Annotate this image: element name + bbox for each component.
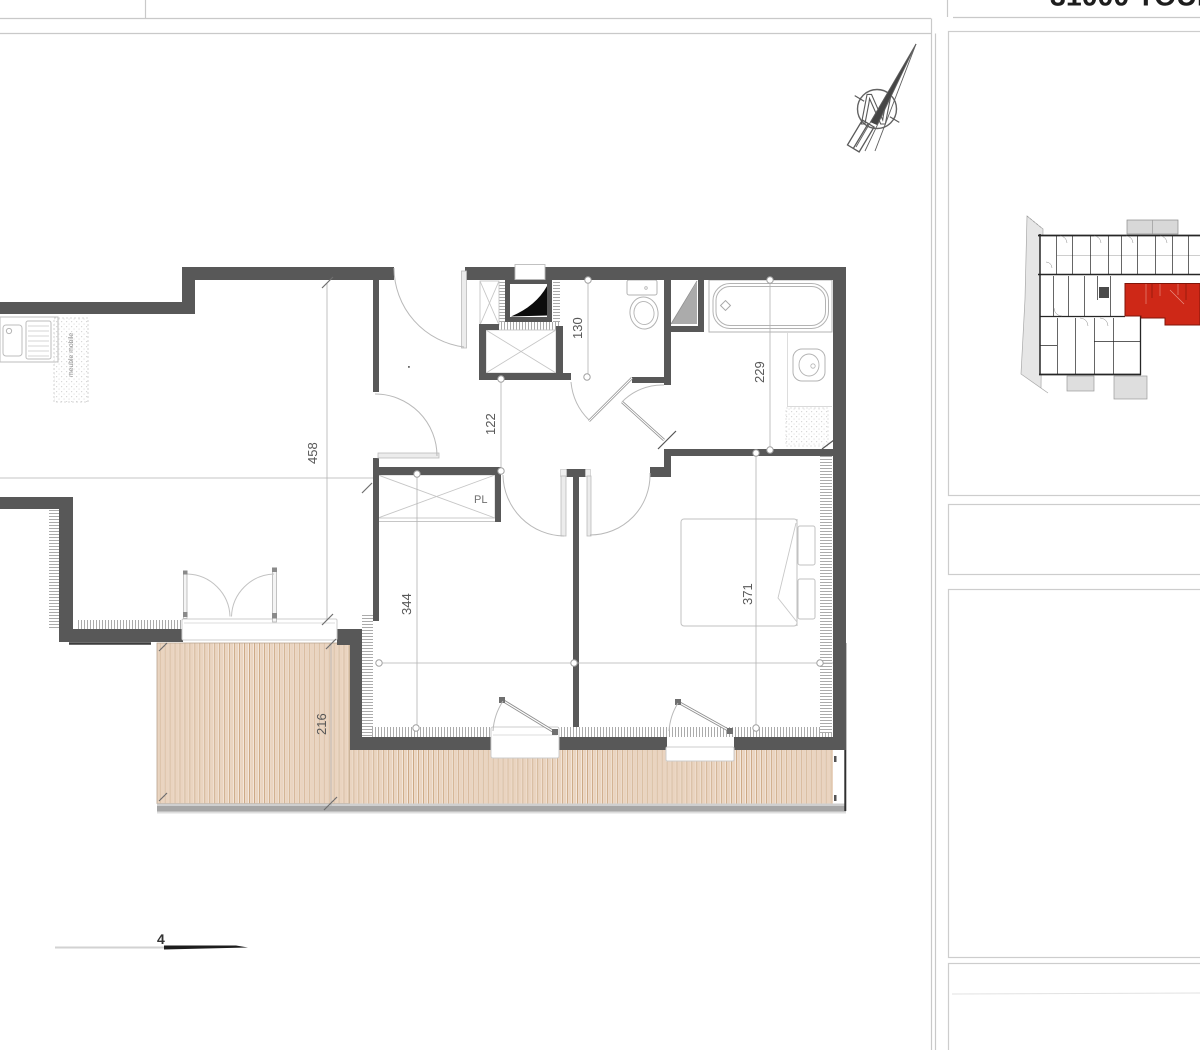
svg-text:31000 TOULOUSE: 31000 TOULOUSE (1050, 0, 1200, 13)
svg-text:344: 344 (399, 593, 414, 615)
svg-text:122: 122 (483, 413, 498, 435)
svg-text:PL: PL (474, 494, 487, 506)
svg-text:216: 216 (314, 713, 329, 735)
svg-text:229: 229 (752, 361, 767, 383)
svg-text:458: 458 (305, 442, 320, 464)
svg-text:meuble mobile: meuble mobile (68, 333, 75, 377)
svg-text:4: 4 (157, 931, 165, 947)
svg-text:130: 130 (570, 317, 585, 339)
svg-text:371: 371 (740, 583, 755, 605)
